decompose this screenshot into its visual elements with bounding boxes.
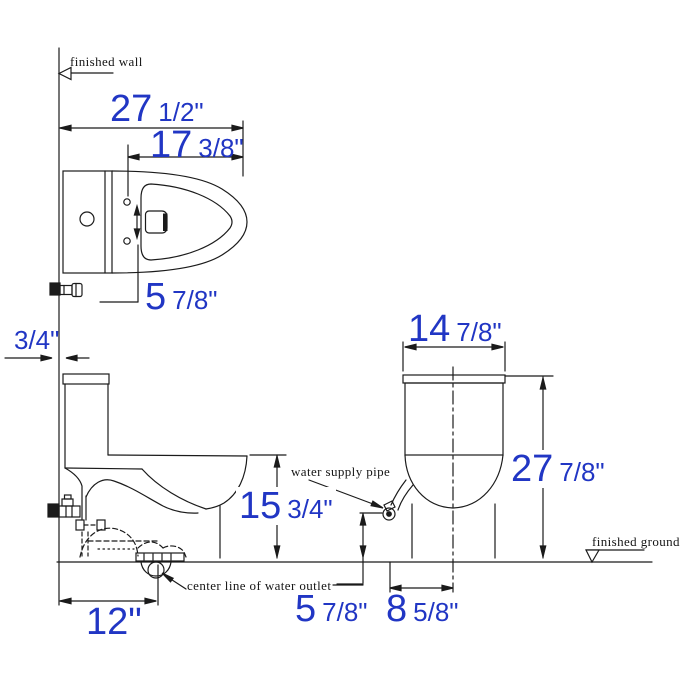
side-view xyxy=(48,374,247,578)
dim-seat-depth: 17 3/8" xyxy=(150,126,244,164)
top-view-bolt-hole xyxy=(124,199,130,205)
water-supply-pipe-label: water supply pipe xyxy=(291,465,390,478)
finished-wall-label: finished wall xyxy=(70,55,143,68)
side-view-seat-top xyxy=(108,455,247,456)
top-view-seat-outline xyxy=(112,171,247,273)
dim-wall-gap: 3/4" xyxy=(8,327,59,353)
front-view-bowl xyxy=(405,455,503,508)
finished-ground-line xyxy=(57,550,652,562)
dim-supply-height: 5 7/8" xyxy=(295,590,368,628)
top-view-bolt-hole xyxy=(124,238,130,244)
dim-bowl-height: 15 3/4" xyxy=(236,487,336,525)
side-view-water-outlet xyxy=(136,553,184,578)
dim-supply-height-lines xyxy=(337,513,382,584)
dim-rough-in: 12" xyxy=(86,603,148,641)
side-view-flange xyxy=(76,520,105,556)
dim-tank-width: 14 7/8" xyxy=(408,310,502,348)
dim-bolt-spacing-lines xyxy=(100,206,140,302)
top-view-seat-inner xyxy=(141,184,232,260)
dim-bolt-spacing: 5 7/8" xyxy=(145,278,218,316)
side-view-tank-lid xyxy=(63,374,109,384)
front-view xyxy=(383,367,505,592)
top-view-supply-valve xyxy=(50,283,82,297)
toilet-dimension-drawing: finished wall water supply pipe center l… xyxy=(0,0,700,700)
front-view-tank-lid xyxy=(403,375,505,383)
dim-overall-height: 27 7/8" xyxy=(508,450,608,488)
dim-wall-gap-lines xyxy=(5,355,89,360)
dim-overall-depth: 27 1/2" xyxy=(110,90,204,128)
front-view-supply-pipe xyxy=(383,480,413,520)
dim-supply-offset: 8 5/8" xyxy=(386,590,459,628)
finished-ground-label: finished ground xyxy=(592,535,680,548)
front-view-tank xyxy=(405,383,503,455)
top-view-tank-hole xyxy=(80,212,94,226)
side-view-supply-valve xyxy=(48,495,80,517)
dim-rough-in-lines xyxy=(60,565,158,605)
